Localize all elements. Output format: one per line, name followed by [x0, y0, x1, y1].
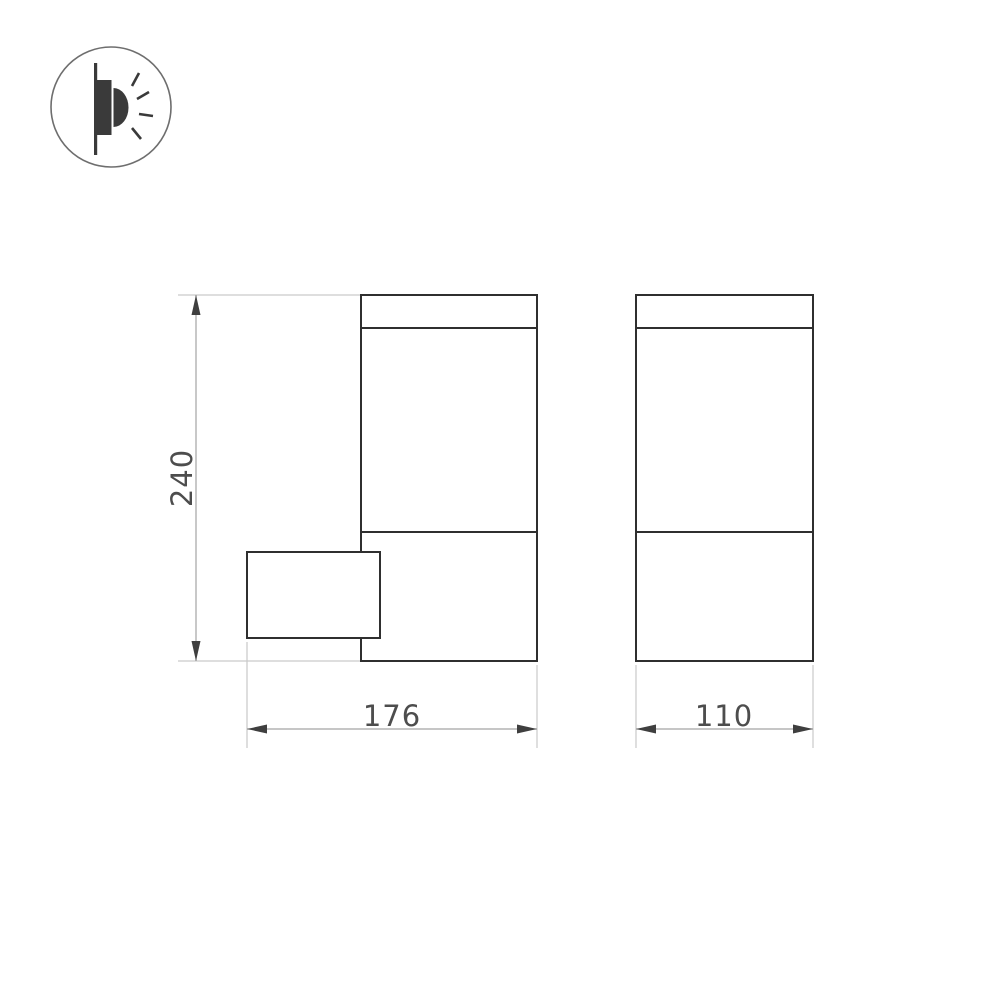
front-view: [247, 295, 537, 661]
height-dimension: 240: [165, 295, 201, 661]
depth-dimension: 110: [636, 699, 813, 734]
width-dim-arrow-left: [247, 725, 267, 734]
depth-dimension-value: 110: [695, 699, 753, 733]
width-dimension: 176: [247, 699, 537, 734]
height-dim-arrow-bottom: [192, 641, 201, 661]
side-view-outline: [636, 295, 813, 661]
wall-mounted-light-icon: [51, 47, 171, 167]
technical-drawing: 240 176 110: [0, 0, 1000, 1000]
wall-line: [94, 63, 97, 155]
side-view: [636, 295, 813, 661]
depth-dim-arrow-right: [793, 725, 813, 734]
lamp-body: [97, 80, 112, 135]
wall-mount-box: [247, 552, 380, 638]
drawing-page: 240 176 110: [0, 0, 1000, 1000]
width-dim-arrow-right: [517, 725, 537, 734]
front-view-outline: [361, 295, 537, 661]
height-dimension-value: 240: [165, 449, 199, 507]
width-dimension-value: 176: [363, 699, 421, 733]
depth-dim-arrow-left: [636, 725, 656, 734]
height-dim-arrow-top: [192, 295, 201, 315]
